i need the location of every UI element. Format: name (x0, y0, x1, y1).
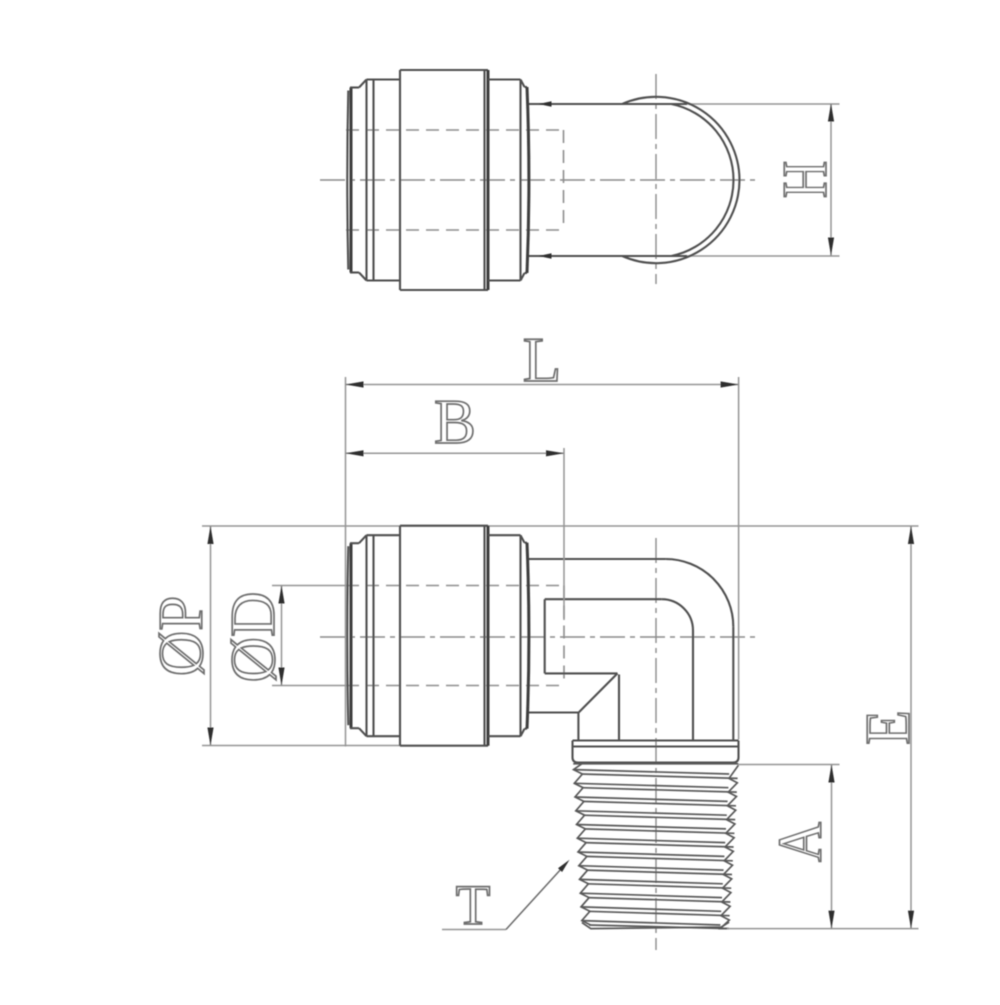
svg-text:E: E (853, 710, 922, 745)
svg-text:ØP: ØP (146, 596, 216, 677)
svg-text:T: T (456, 874, 491, 937)
svg-text:A: A (765, 822, 835, 862)
svg-text:ØD: ØD (218, 592, 288, 683)
svg-text:B: B (434, 387, 476, 457)
svg-text:L: L (523, 325, 561, 395)
svg-text:H: H (771, 161, 840, 198)
